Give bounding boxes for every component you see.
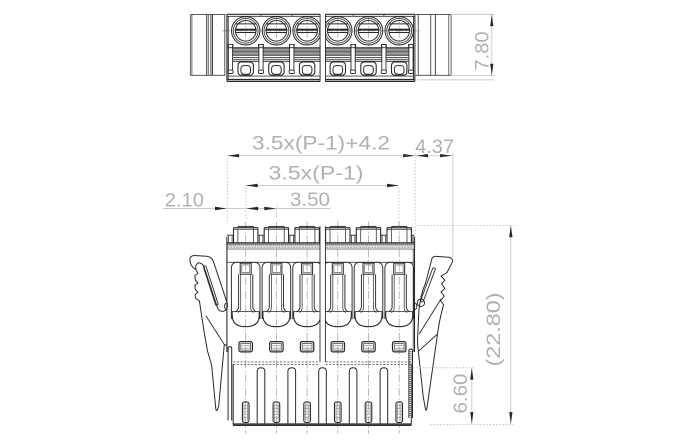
- svg-text:3.5x(P-1): 3.5x(P-1): [269, 163, 364, 184]
- svg-text:4.37: 4.37: [415, 137, 454, 158]
- svg-text:6.60: 6.60: [451, 374, 472, 414]
- svg-text:(22.80): (22.80): [484, 293, 505, 367]
- svg-text:7.80: 7.80: [473, 32, 494, 71]
- svg-text:3.50: 3.50: [290, 190, 330, 211]
- svg-text:3.5x(P-1)+4.2: 3.5x(P-1)+4.2: [252, 134, 390, 155]
- svg-text:2.10: 2.10: [165, 191, 204, 212]
